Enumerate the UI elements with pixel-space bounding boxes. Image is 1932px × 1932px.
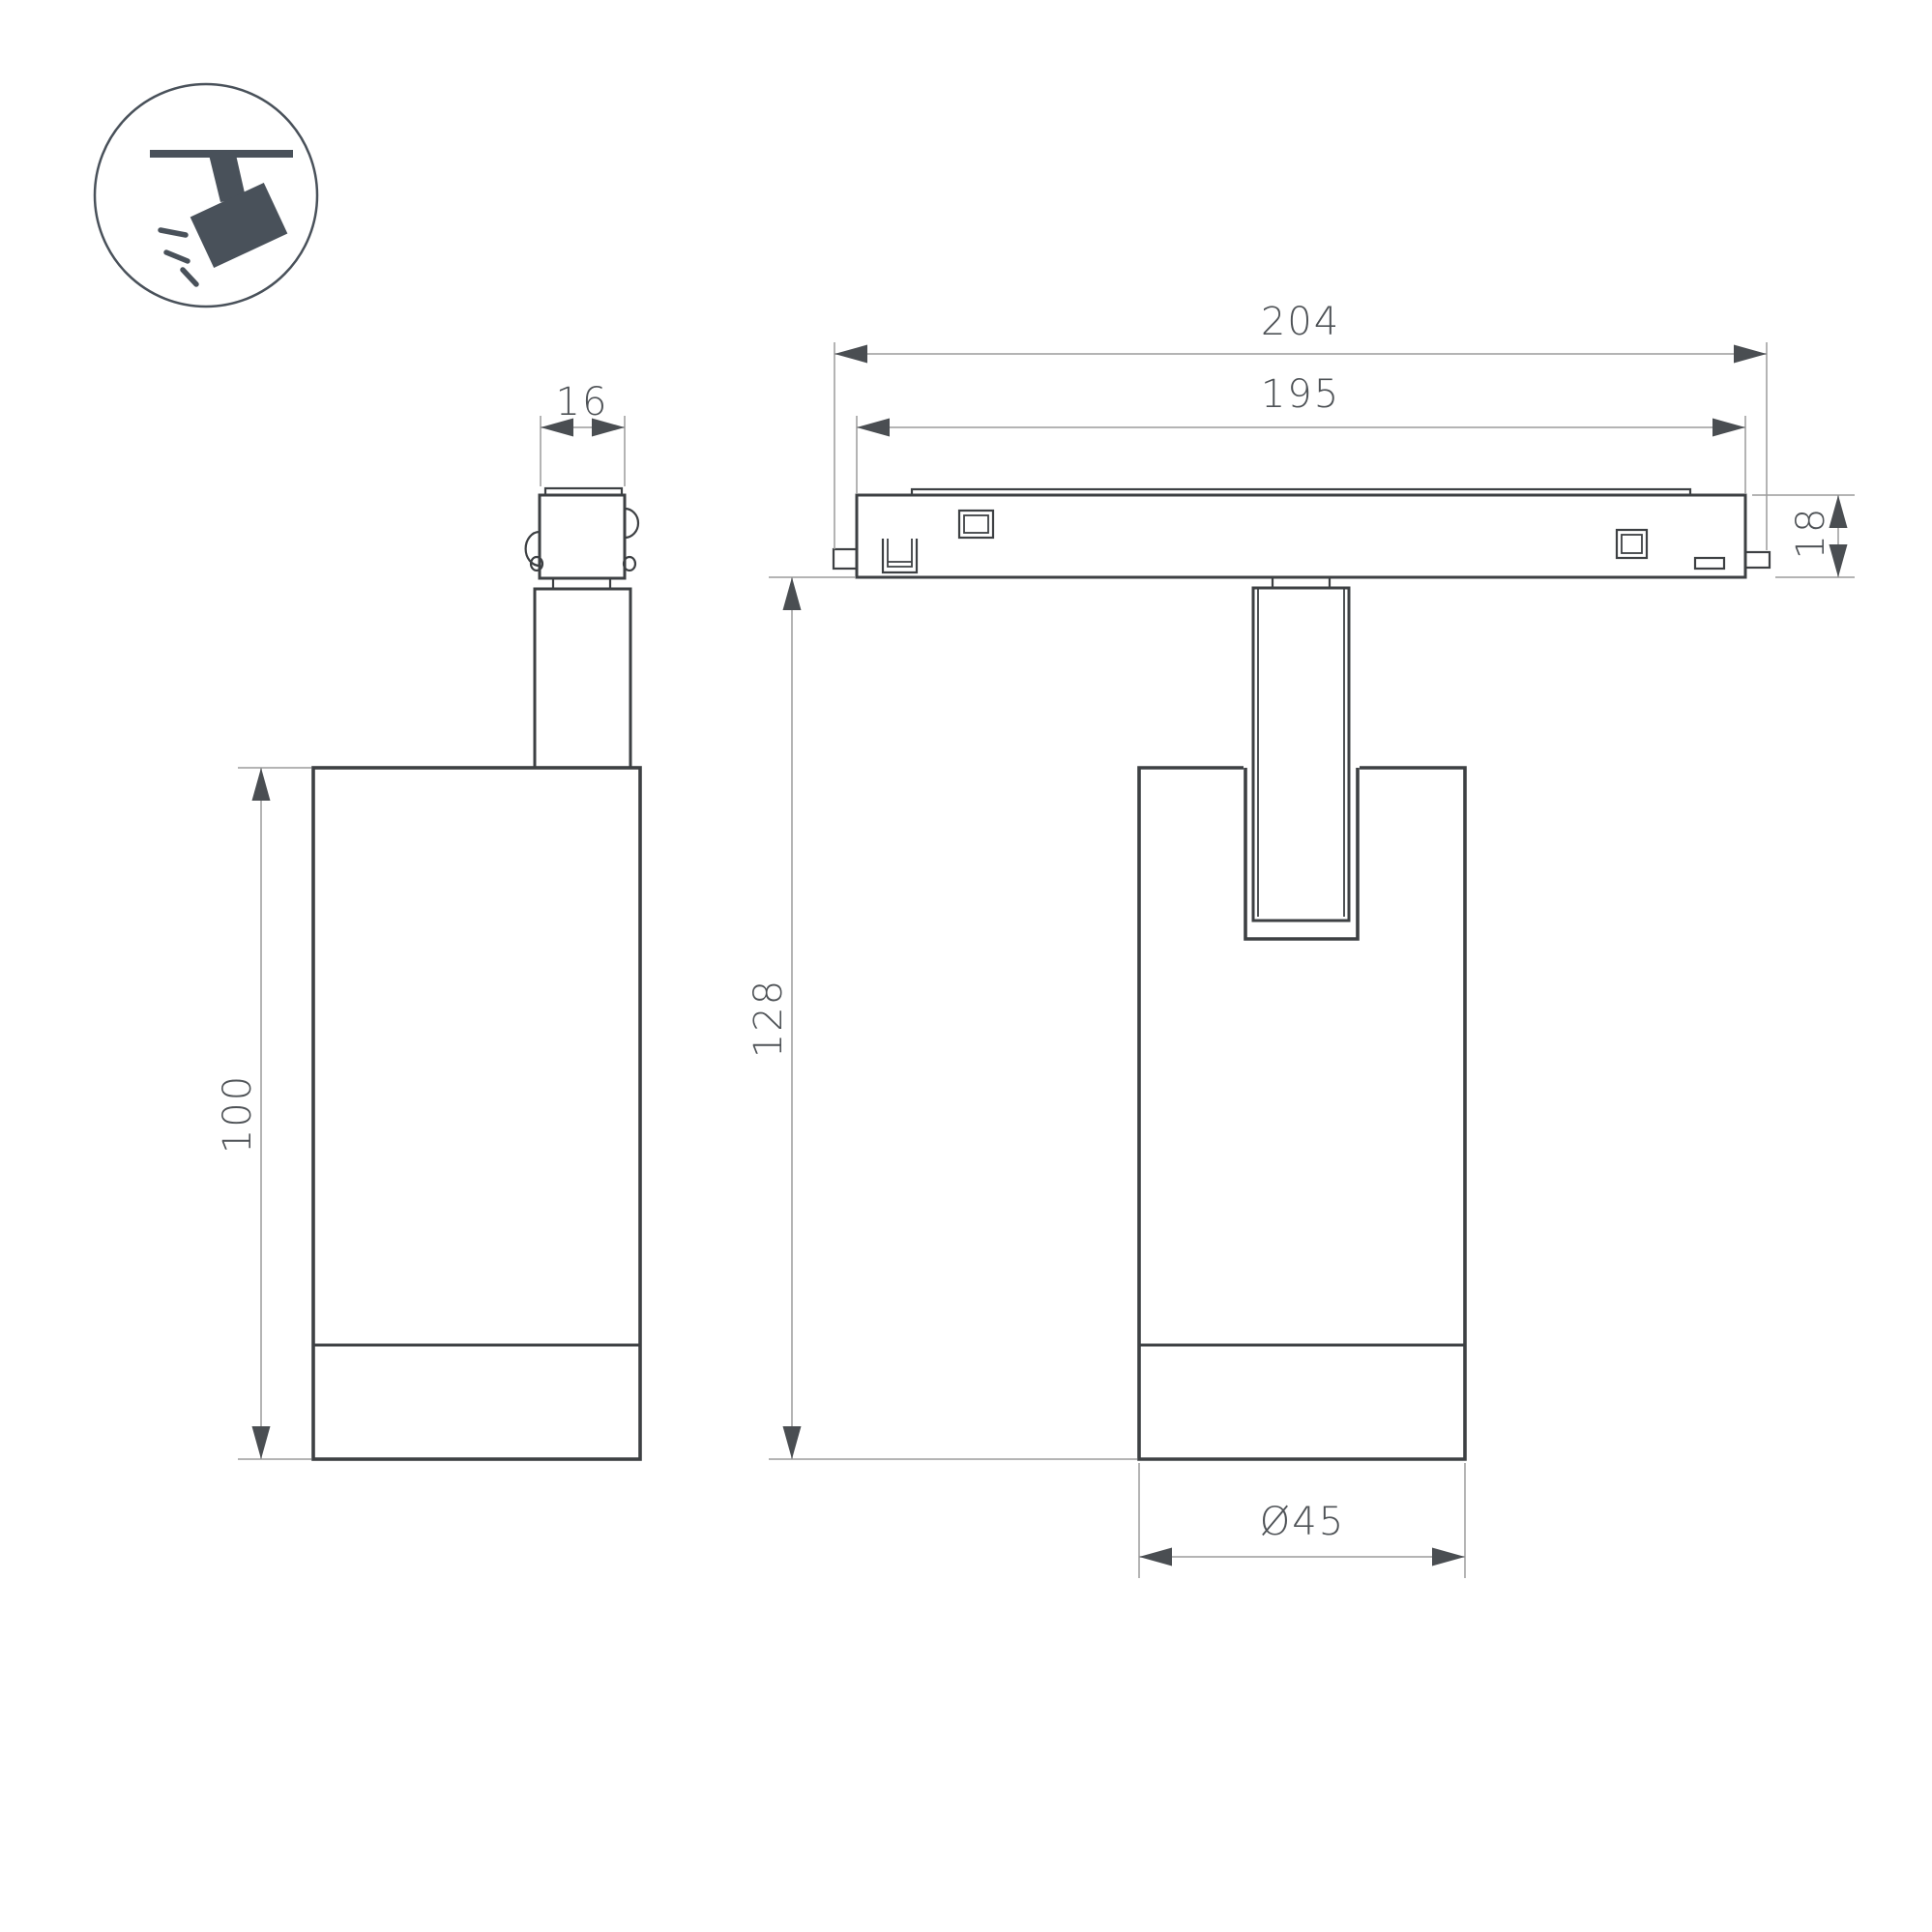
- dim-adapter-width: 16: [541, 380, 625, 486]
- dim-label-16: 16: [556, 380, 609, 424]
- dim-lamp-diameter: Ø45: [1139, 1463, 1465, 1578]
- track-left-tab: [834, 549, 857, 569]
- dim-label-diameter-45: Ø45: [1260, 1500, 1345, 1544]
- dim-track-overall-length: 204: [834, 300, 1767, 550]
- track-vent-slot: [1695, 558, 1724, 569]
- adapter-body: [540, 495, 625, 578]
- track-body: [857, 495, 1745, 577]
- stem-connector-step: [1273, 577, 1330, 588]
- lamp-body-side: [313, 768, 640, 1459]
- dim-overall-drop-height: 128: [746, 577, 1137, 1459]
- dim-label-204: 204: [1261, 300, 1340, 344]
- stem-front: [1253, 588, 1349, 921]
- track-right-tab: [1745, 552, 1770, 568]
- technical-drawing-canvas: 204 195 16 18 128: [0, 0, 1932, 1932]
- track-slot-right: [1617, 530, 1647, 558]
- icon-circle: [95, 84, 317, 307]
- lamp-body-front: [1139, 768, 1465, 1459]
- adapter-right-clip-arc: [625, 509, 638, 538]
- stem-side: [535, 589, 630, 768]
- icon-light-rays: [161, 230, 196, 284]
- track-slot-left: [959, 511, 993, 538]
- icon-lamp-head: [190, 183, 288, 268]
- dim-track-inner-length: 195: [857, 372, 1745, 493]
- dim-label-18: 18: [1789, 507, 1833, 560]
- side-view: [313, 488, 640, 1459]
- track-u-clip: [883, 539, 917, 572]
- lamp-slot: [1245, 768, 1358, 939]
- mount-type-icon: [95, 84, 317, 307]
- front-view: [834, 489, 1770, 1459]
- adapter-neck: [553, 578, 610, 589]
- dim-label-100: 100: [216, 1074, 260, 1154]
- dim-label-128: 128: [746, 979, 791, 1058]
- dim-lamp-body-height: 100: [216, 768, 311, 1459]
- dim-track-height: 18: [1752, 495, 1855, 577]
- dim-label-195: 195: [1261, 372, 1340, 417]
